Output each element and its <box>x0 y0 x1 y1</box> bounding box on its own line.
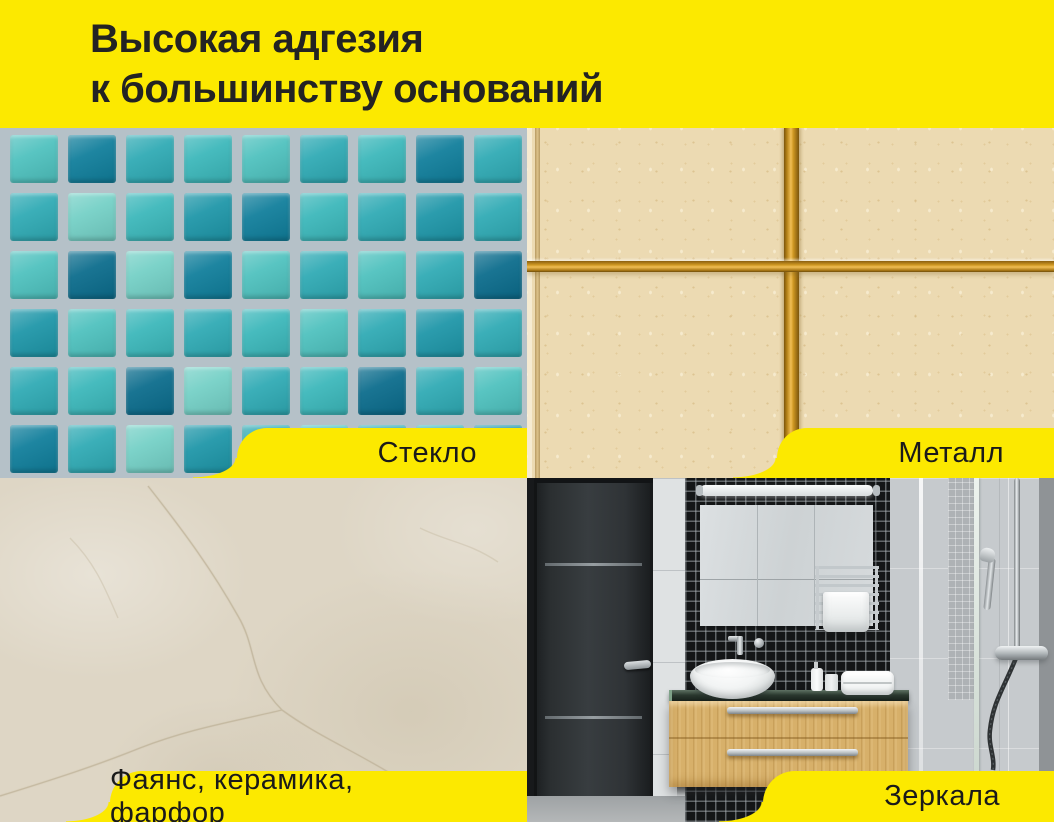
label-tab-metal: Металл <box>777 428 1054 478</box>
mosaic-tile <box>184 367 232 415</box>
label-metal: Металл <box>898 437 1004 470</box>
mosaic-tile <box>126 309 174 357</box>
metal-tiles-image <box>527 128 1054 478</box>
towel-stack <box>841 671 894 695</box>
mosaic-tile <box>416 135 464 183</box>
drawer-handle <box>727 749 858 756</box>
promo-banner: Высокая адгезия к большинству оснований … <box>0 0 1054 822</box>
mosaic-tile <box>184 309 232 357</box>
mosaic-tile <box>416 251 464 299</box>
door-stripe <box>545 716 642 719</box>
shower-mixer <box>995 646 1048 660</box>
label-tab-glass: Стекло <box>237 428 527 478</box>
mosaic-tile <box>68 425 116 473</box>
mosaic-tile <box>358 135 406 183</box>
mosaic-tile <box>416 309 464 357</box>
mosaic-tile <box>126 251 174 299</box>
tumbler-cup <box>825 674 838 691</box>
mosaic-tile <box>474 309 522 357</box>
quadrant-ceramic-photo: Фаянс, керамика, фарфор <box>0 478 527 822</box>
quadrant-mirror-photo: Зеркала <box>527 478 1054 822</box>
label-ceramic: Фаянс, керамика, фарфор <box>110 764 437 822</box>
mosaic-tile <box>242 367 290 415</box>
tile-edge-highlight <box>527 128 532 478</box>
led-light-bar <box>700 485 873 496</box>
led-cap <box>873 485 880 496</box>
mosaic-tile <box>126 367 174 415</box>
door <box>534 483 653 796</box>
faucet-knob <box>754 638 764 648</box>
quadrant-glass-photo: Стекло <box>0 128 527 478</box>
mosaic-tile <box>10 251 58 299</box>
mosaic-tile <box>10 425 58 473</box>
mosaic-tile <box>10 135 58 183</box>
mosaic-tile <box>474 251 522 299</box>
page-title: Высокая адгезия к большинству оснований <box>90 14 603 114</box>
mosaic-tile <box>242 193 290 241</box>
hanging-towel <box>823 592 869 632</box>
mosaic-tile <box>68 367 116 415</box>
mosaic-tile <box>474 367 522 415</box>
mosaic-tile <box>358 251 406 299</box>
mosaic-tile <box>184 251 232 299</box>
floor <box>527 796 685 822</box>
mosaic-tile <box>358 193 406 241</box>
mosaic-tile <box>68 135 116 183</box>
mosaic-tile <box>242 309 290 357</box>
header: Высокая адгезия к большинству оснований <box>0 0 1054 128</box>
door-stripe <box>545 563 642 566</box>
label-tab-mirror: Зеркала <box>763 771 1054 822</box>
mosaic-tile <box>184 193 232 241</box>
mosaic-tile <box>68 251 116 299</box>
mosaic-tile <box>474 135 522 183</box>
mosaic-tile <box>300 135 348 183</box>
mosaic-tile <box>126 135 174 183</box>
thin-grout-line <box>535 128 540 478</box>
mosaic-tile <box>68 193 116 241</box>
title-line-2: к большинству оснований <box>90 64 603 114</box>
mosaic-tile <box>416 367 464 415</box>
label-glass: Стекло <box>378 437 477 470</box>
led-cap <box>696 485 703 496</box>
label-tab-ceramic: Фаянс, керамика, фарфор <box>110 771 527 822</box>
mosaic-tile <box>10 309 58 357</box>
mosaic-tile <box>358 367 406 415</box>
faucet-spout-drop <box>737 636 743 655</box>
mosaic-tile <box>300 193 348 241</box>
mosaic-tile <box>416 193 464 241</box>
mosaic-tile <box>126 193 174 241</box>
gold-grout-horizontal <box>527 261 1054 272</box>
mosaic-tile <box>474 193 522 241</box>
gold-grout-vertical <box>784 128 799 478</box>
quadrant-metal-photo: Металл <box>527 128 1054 478</box>
mosaic-tile <box>184 135 232 183</box>
label-mirror: Зеркала <box>884 780 1000 813</box>
title-line-1: Высокая адгезия <box>90 14 603 64</box>
mosaic-tile <box>242 135 290 183</box>
mosaic-tile <box>10 193 58 241</box>
door-jamb <box>527 478 534 808</box>
soap-dispenser <box>811 668 823 691</box>
mosaic-tile <box>300 251 348 299</box>
mosaic-tile <box>358 309 406 357</box>
glass-mosaic-image <box>0 128 527 478</box>
drawer-handle <box>727 707 858 714</box>
mosaic-tile <box>126 425 174 473</box>
mosaic-tile <box>242 251 290 299</box>
mosaic-tile <box>300 367 348 415</box>
mosaic-tile <box>300 309 348 357</box>
mosaic-tile <box>68 309 116 357</box>
mosaic-tile <box>10 367 58 415</box>
